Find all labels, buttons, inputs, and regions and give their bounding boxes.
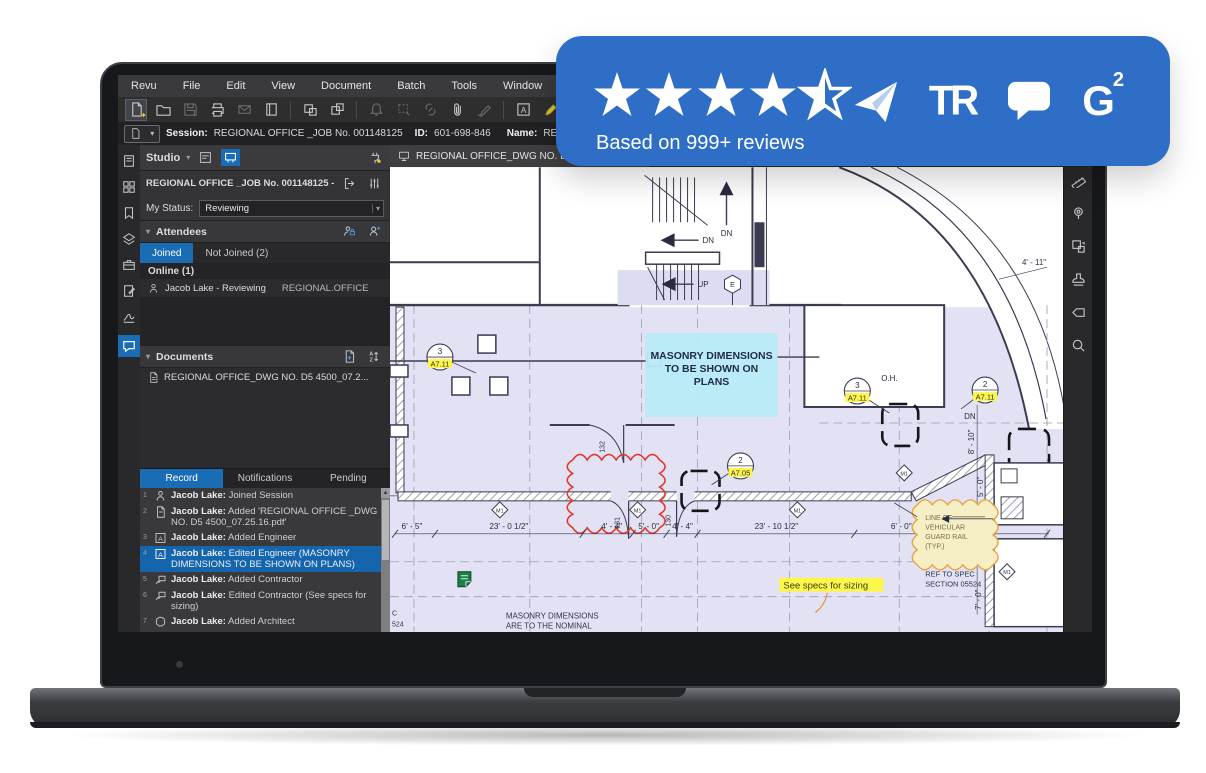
- svg-text:See specs for sizing: See specs for sizing: [783, 581, 868, 592]
- menu-edit[interactable]: Edit: [213, 80, 258, 92]
- studio-title: Studio: [146, 152, 180, 164]
- menu-view[interactable]: View: [258, 80, 308, 92]
- chevron-down-icon: ▾: [150, 129, 154, 138]
- flag-tag-icon[interactable]: [1071, 305, 1086, 325]
- svg-text:2: 2: [983, 380, 988, 389]
- svg-text:3: 3: [855, 381, 860, 390]
- scroll-up-icon[interactable]: ▲: [381, 488, 390, 498]
- record-number: 5: [143, 574, 150, 586]
- record-row[interactable]: 1 Jacob Lake: Joined Session: [140, 488, 381, 504]
- toolbar-separator: [503, 101, 504, 119]
- svg-text:2: 2: [738, 456, 743, 465]
- tab-not-joined[interactable]: Not Joined (2): [193, 243, 280, 263]
- tab-notifications[interactable]: Notifications: [223, 469, 306, 488]
- record-row[interactable]: 6 Jacob Lake: Edited Contractor (See spe…: [140, 588, 381, 614]
- record-action: Added Contractor: [228, 574, 302, 585]
- trustradius-logo: TR: [929, 77, 976, 124]
- reviews-caption: Based on 999+ reviews: [596, 132, 804, 155]
- power-indicator: [176, 661, 183, 668]
- dn-right-label: DN: [964, 412, 976, 421]
- text-box-button[interactable]: A: [513, 100, 533, 120]
- stair-dn2-label: DN: [703, 236, 715, 245]
- connection-status-icon: [365, 149, 384, 166]
- svg-text:3: 3: [438, 347, 443, 356]
- attendee-org: REGIONAL.OFFICE: [282, 283, 369, 294]
- oh-label: O.H.: [881, 374, 897, 383]
- studio-panel-icon[interactable]: [118, 335, 140, 357]
- layers-panel-icon[interactable]: [122, 231, 137, 246]
- svg-text:Z: Z: [370, 357, 374, 363]
- paper-plane-logo: [853, 78, 899, 124]
- export-window-button[interactable]: [327, 100, 347, 120]
- record-row[interactable]: 7 Jacob Lake: Added Architect: [140, 614, 381, 630]
- svg-text:PLANS: PLANS: [694, 377, 729, 388]
- laptop-notch: [524, 688, 686, 697]
- attach-button[interactable]: [447, 100, 467, 120]
- record-number: 6: [143, 590, 150, 612]
- svg-text:GUARD RAIL: GUARD RAIL: [925, 534, 968, 541]
- g2-logo: G2: [1082, 77, 1126, 125]
- record-row[interactable]: 2 Jacob Lake: Added 'REGIONAL OFFICE _DW…: [140, 504, 381, 530]
- collapse-icon[interactable]: ▾: [146, 227, 150, 236]
- studio-panel: Studio ▾ REGIONAL OFFICE _JOB No. 001148…: [140, 145, 391, 632]
- record-number: 1: [143, 490, 150, 502]
- menu-document[interactable]: Document: [308, 80, 384, 92]
- stair-up-label: UP: [698, 280, 709, 289]
- my-status-row: My Status: Reviewing ▾: [140, 196, 390, 220]
- layout-pages-icon[interactable]: [1071, 239, 1086, 259]
- elevator-tag: E: [730, 282, 735, 289]
- record-row-selected[interactable]: 4 A Jacob Lake: Edited Engineer (MASONRY…: [140, 546, 381, 572]
- add-document-icon[interactable]: [340, 348, 359, 365]
- attendees-empty-area: [140, 297, 390, 345]
- pdf-file-icon: [148, 372, 159, 383]
- right-panel-strip: [1063, 145, 1092, 632]
- stamp-tool-icon[interactable]: [1071, 272, 1086, 292]
- email-button[interactable]: [234, 100, 254, 120]
- person-icon: [154, 490, 167, 502]
- laptop-base: [30, 688, 1180, 728]
- tab-joined[interactable]: Joined: [140, 243, 193, 263]
- spaces-pin-icon[interactable]: [1071, 206, 1086, 226]
- svg-text:A7.11: A7.11: [848, 393, 867, 402]
- search-icon[interactable]: [1071, 338, 1086, 358]
- masonry-note-markup[interactable]: MASONRY DIMENSIONS TO BE SHOWN ON PLANS: [646, 333, 778, 417]
- bookmarks-panel-icon[interactable]: [122, 205, 137, 220]
- attendee-row[interactable]: Jacob Lake - Reviewing REGIONAL.OFFICE: [140, 279, 390, 297]
- svg-text:MASONRY DIMENSIONS: MASONRY DIMENSIONS: [506, 612, 599, 621]
- floor-plan: DN DN UP E MASONRY DIMENSIONS: [390, 167, 1064, 632]
- import-window-button[interactable]: [300, 100, 320, 120]
- svg-text:M1: M1: [900, 471, 908, 477]
- svg-text:M1: M1: [1003, 570, 1011, 576]
- pdf-file-icon: [154, 506, 167, 518]
- attendees-tabs: Joined Not Joined (2): [140, 243, 390, 263]
- svg-text:23' - 10 1/2": 23' - 10 1/2": [755, 522, 799, 531]
- svg-text:TO BE SHOWN ON: TO BE SHOWN ON: [665, 364, 758, 375]
- measure-tool-icon[interactable]: [1071, 173, 1086, 193]
- svg-text:8' - 10": 8' - 10": [967, 429, 976, 454]
- svg-text:6' - 5": 6' - 5": [402, 522, 423, 531]
- document-area: REGIONAL OFFICE_DWG NO. D5 4500: [390, 145, 1064, 632]
- format-paint-button[interactable]: [474, 100, 494, 120]
- attendee-name: Jacob Lake - Reviewing: [165, 283, 266, 294]
- speech-bubble-logo: [1006, 80, 1052, 122]
- record-row[interactable]: 5 Jacob Lake: Added Contractor: [140, 572, 381, 588]
- svg-text:A: A: [158, 552, 163, 559]
- session-settings-button[interactable]: [365, 175, 384, 192]
- record-action: Added Architect: [228, 616, 295, 627]
- menu-tools[interactable]: Tools: [438, 80, 490, 92]
- my-status-label: My Status:: [146, 203, 193, 214]
- session-title-row: REGIONAL OFFICE _JOB No. 001148125 - 601…: [140, 171, 390, 196]
- svg-text:5' - 0": 5' - 0": [976, 477, 985, 497]
- online-header: Online (1): [140, 263, 390, 279]
- svg-text:MASONRY DIMENSIONS: MASONRY DIMENSIONS: [650, 351, 772, 362]
- review-site-logos: TR G2: [853, 72, 1126, 130]
- collapse-icon[interactable]: ▾: [146, 352, 150, 361]
- session-value: REGIONAL OFFICE _JOB No. 001148125: [214, 128, 403, 139]
- save-button[interactable]: [180, 100, 200, 120]
- text-markup-icon: A: [154, 548, 167, 560]
- signatures-panel-icon[interactable]: [122, 309, 137, 324]
- session-list-button[interactable]: [196, 149, 215, 166]
- svg-text:A: A: [520, 105, 526, 115]
- new-sparkle-icon: ✦: [140, 112, 147, 120]
- session-id-value: 601-698-846: [434, 128, 491, 139]
- svg-text:A7.11: A7.11: [976, 393, 995, 402]
- toolbar-separator: [356, 101, 357, 119]
- chevron-down-icon: ▾: [372, 204, 383, 213]
- svg-text:C: C: [392, 611, 397, 618]
- svg-text:7' - 0": 7' - 0": [974, 589, 983, 609]
- callout-markup-icon: [154, 590, 167, 602]
- svg-text:M1: M1: [794, 508, 802, 514]
- print-button[interactable]: [207, 100, 227, 120]
- select-button[interactable]: [393, 100, 413, 120]
- cloud-markup-icon: [154, 616, 167, 628]
- toolchest-panel-icon[interactable]: [122, 257, 137, 272]
- menu-revu[interactable]: Revu: [118, 80, 170, 92]
- session-monitor-icon: [398, 150, 410, 162]
- stair-dn-label: DN: [721, 229, 733, 238]
- svg-text:A: A: [158, 536, 163, 543]
- open-file-button[interactable]: [153, 100, 173, 120]
- left-panel-strip: [118, 145, 141, 632]
- spec-ref-line1: REF TO SPEC: [925, 570, 975, 579]
- document-name: REGIONAL OFFICE_DWG NO. D5 4500_07.2...: [164, 372, 369, 383]
- svg-text:4' - 4": 4' - 4": [672, 522, 693, 531]
- my-status-select[interactable]: Reviewing ▾: [199, 200, 384, 217]
- svg-text:5' - 0": 5' - 0": [638, 522, 659, 531]
- spec-ref-line2: SECTION 05524: [925, 580, 981, 589]
- permissions-icon[interactable]: [340, 223, 359, 240]
- text-markup-icon: A: [154, 532, 167, 544]
- studio-header: Studio ▾: [140, 145, 390, 171]
- record-number: 4: [143, 548, 150, 570]
- svg-text:A7.05: A7.05: [731, 468, 751, 477]
- attendees-header[interactable]: ▾ Attendees: [140, 220, 390, 243]
- studio-session-button[interactable]: [221, 149, 240, 166]
- chevron-down-icon[interactable]: ▾: [186, 153, 190, 162]
- door-132-label: 132: [600, 441, 607, 453]
- svg-text:4' - 4": 4' - 4": [601, 522, 622, 531]
- laptop-shadow: [55, 724, 1155, 746]
- documents-title: Documents: [156, 351, 213, 363]
- attendees-title: Attendees: [156, 226, 207, 238]
- record-number: 2: [143, 506, 150, 528]
- leave-session-button[interactable]: [340, 175, 359, 192]
- record-scrollbar[interactable]: ▲: [381, 488, 390, 632]
- thumbnails-panel-icon[interactable]: [122, 179, 137, 194]
- documents-header[interactable]: ▾ Documents AZ: [140, 345, 390, 368]
- svg-text:23' - 0 1/2": 23' - 0 1/2": [489, 522, 528, 531]
- document-dropdown[interactable]: ▾: [124, 125, 160, 143]
- record-list: 1 Jacob Lake: Joined Session 2 Jacob Lak…: [140, 488, 390, 632]
- session-id-label: ID:: [415, 128, 428, 139]
- document-row[interactable]: REGIONAL OFFICE_DWG NO. D5 4500_07.2...: [140, 368, 390, 386]
- svg-text:M1: M1: [634, 508, 642, 514]
- session-name-label: Name:: [507, 128, 538, 139]
- drawing-canvas[interactable]: DN DN UP E MASONRY DIMENSIONS: [390, 167, 1064, 632]
- properties-panel-icon[interactable]: [122, 153, 137, 168]
- markups-list-panel-icon[interactable]: [122, 283, 137, 298]
- reviews-badge: Based on 999+ reviews TR G2: [556, 36, 1170, 166]
- scroll-thumb[interactable]: [382, 500, 389, 560]
- svg-text:524: 524: [392, 622, 404, 629]
- right-rooms: [994, 463, 1064, 627]
- session-label: Session:: [166, 128, 208, 139]
- callout-markup-icon: [154, 574, 167, 586]
- toolbar-separator: [290, 101, 291, 119]
- my-status-value: Reviewing: [205, 203, 249, 214]
- svg-text:VEHICULAR: VEHICULAR: [925, 524, 965, 531]
- menu-batch[interactable]: Batch: [384, 80, 438, 92]
- record-number: 7: [143, 616, 150, 628]
- svg-text:(TYP.): (TYP.): [925, 543, 944, 550]
- page-background: Revu File Edit View Document Batch Tools…: [0, 0, 1206, 773]
- profiles-button[interactable]: [261, 100, 281, 120]
- menu-file[interactable]: File: [170, 80, 214, 92]
- svg-text:4' - 11": 4' - 11": [1022, 258, 1046, 267]
- record-number: 3: [143, 532, 150, 544]
- hyperlink-button[interactable]: [420, 100, 440, 120]
- svg-text:ARE TO THE NOMINAL: ARE TO THE NOMINAL: [506, 622, 592, 631]
- record-action: Added Engineer: [228, 532, 296, 543]
- menu-window[interactable]: Window: [490, 80, 555, 92]
- alert-button[interactable]: [366, 100, 386, 120]
- tab-record[interactable]: Record: [140, 469, 223, 488]
- session-title: REGIONAL OFFICE _JOB No. 001148125 - 601…: [146, 178, 334, 189]
- invite-attendee-icon[interactable]: [365, 223, 384, 240]
- person-icon: [148, 283, 159, 294]
- star-rating: [592, 68, 852, 124]
- new-document-button[interactable]: ✦: [126, 100, 146, 120]
- record-action: Joined Session: [229, 490, 293, 501]
- record-tabs: Record Notifications Pending: [140, 468, 390, 488]
- sort-az-icon[interactable]: AZ: [365, 348, 384, 365]
- svg-text:A7.11: A7.11: [430, 360, 449, 369]
- tab-pending[interactable]: Pending: [307, 469, 390, 488]
- svg-text:6' - 0": 6' - 0": [891, 522, 912, 531]
- documents-empty-area: [140, 386, 390, 468]
- record-row[interactable]: 3 A Jacob Lake: Added Engineer: [140, 530, 381, 546]
- svg-text:M1: M1: [496, 508, 504, 514]
